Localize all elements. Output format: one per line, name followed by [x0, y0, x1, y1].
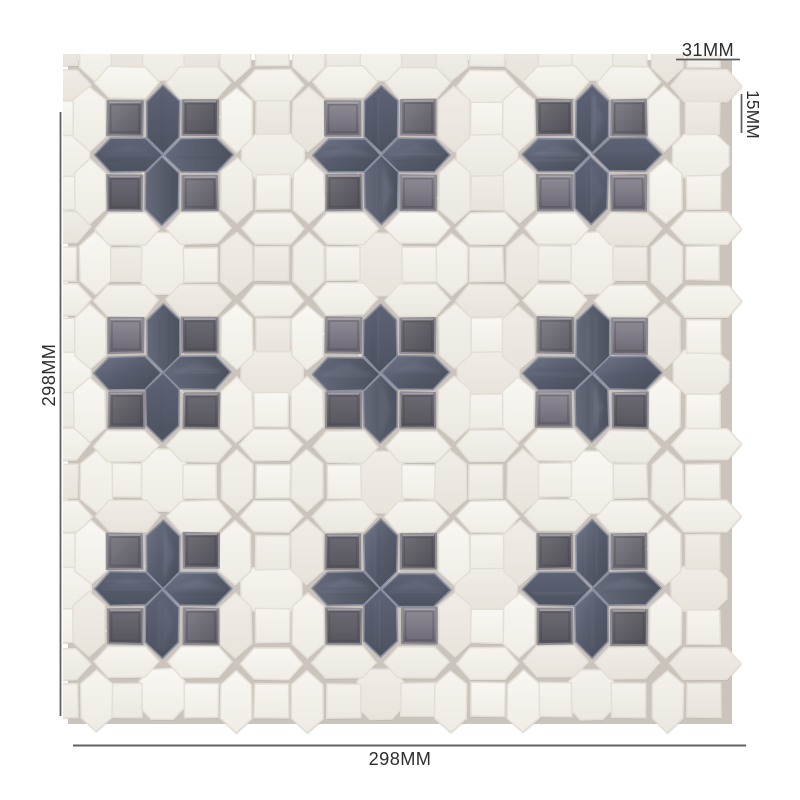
svg-text:298MM: 298MM — [39, 344, 59, 407]
svg-text:15MM: 15MM — [743, 90, 763, 139]
svg-text:31MM: 31MM — [682, 40, 734, 60]
svg-text:298MM: 298MM — [369, 749, 432, 769]
